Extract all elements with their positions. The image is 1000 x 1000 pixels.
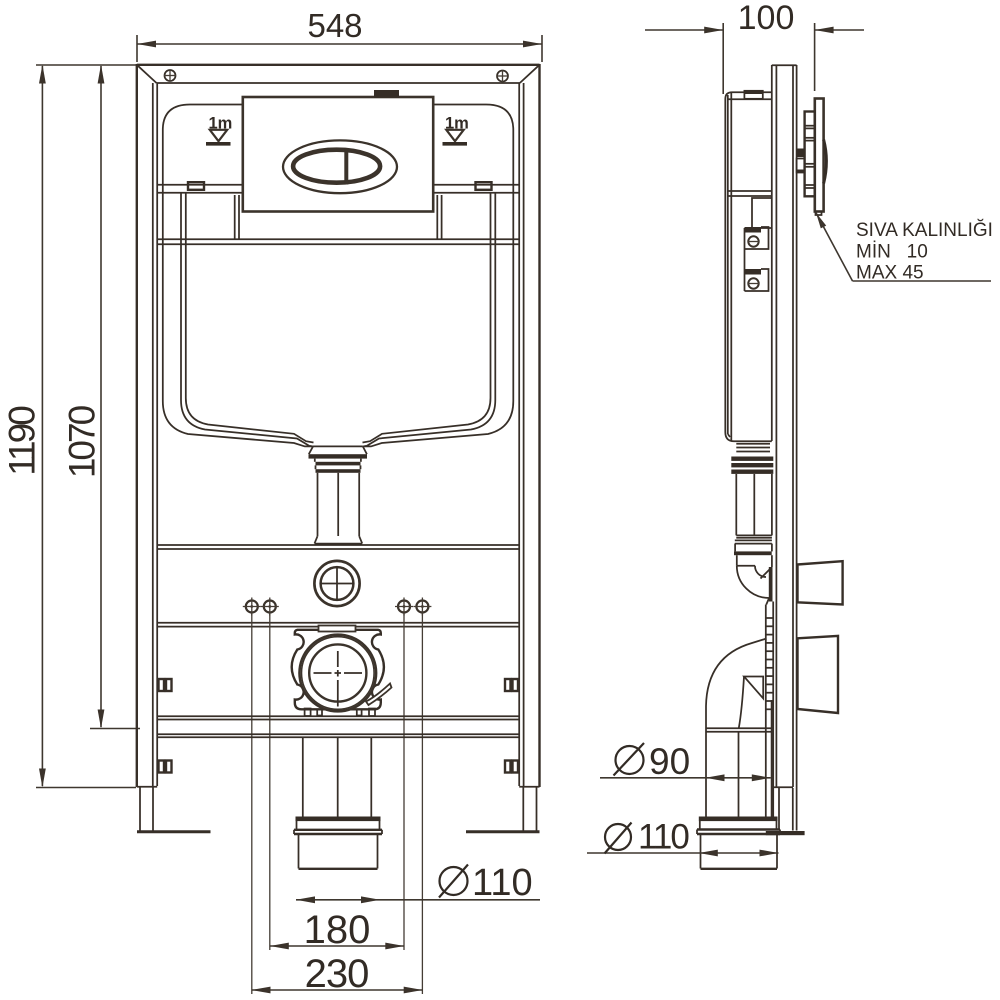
svg-text:100: 100 xyxy=(738,0,795,37)
svg-text:110: 110 xyxy=(638,818,689,857)
svg-text:SIVA KALINLIĞI: SIVA KALINLIĞI xyxy=(856,219,993,241)
svg-text:MAX 45: MAX 45 xyxy=(856,263,924,284)
svg-text:MİN 10: MİN 10 xyxy=(856,242,928,263)
svg-text:110: 110 xyxy=(472,862,533,904)
svg-text:1190: 1190 xyxy=(2,406,43,476)
svg-text:230: 230 xyxy=(305,952,369,996)
svg-text:90: 90 xyxy=(649,741,690,782)
svg-text:1070: 1070 xyxy=(62,405,103,478)
svg-text:180: 180 xyxy=(304,908,371,952)
svg-text:548: 548 xyxy=(307,7,362,44)
